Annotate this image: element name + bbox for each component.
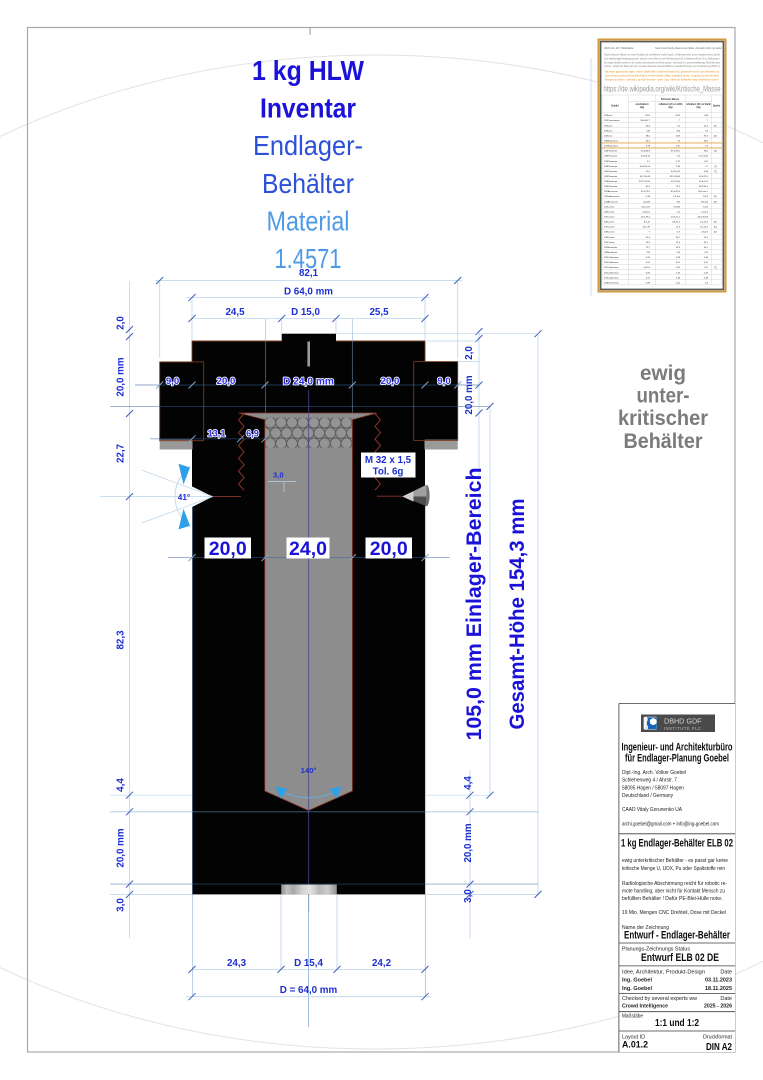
svg-text:https://de.wikipedia.org/wiki/: https://de.wikipedia.org/wiki/Kritische_…: [604, 85, 721, 94]
svg-text:2025 - 2026: 2025 - 2026: [704, 1003, 732, 1009]
svg-text:befüllten Behälter ! Dafür PE-: befüllten Behälter ! Dafür PE-Blei-Hülle…: [622, 896, 722, 902]
svg-text:6,9: 6,9: [246, 429, 259, 439]
svg-text:[9]: [9]: [714, 201, 717, 203]
svg-text:24,0: 24,0: [289, 538, 327, 560]
svg-text:Schlehenweg 4 / Ahrstr. 7: Schlehenweg 4 / Ahrstr. 7: [622, 778, 677, 784]
svg-text:25,5: 25,5: [369, 307, 389, 318]
svg-text:Tol. 6g: Tol. 6g: [373, 467, 404, 478]
svg-text:19 Mio. Mengen CNC Drehteil, D: 19 Mio. Mengen CNC Drehteil, Dose mit De…: [622, 910, 726, 916]
svg-text:Nuklid: Nuklid: [611, 105, 619, 108]
svg-text:47,6-75,6: 47,6-75,6: [641, 191, 651, 193]
svg-text:4,4: 4,4: [116, 778, 127, 792]
svg-text:0,74+4,09: 0,74+4,09: [698, 156, 708, 158]
svg-text:37-280: 37-280: [673, 206, 681, 208]
svg-text:DBHD GDF: DBHD GDF: [664, 717, 702, 726]
svg-text:2559: 2559: [645, 115, 651, 117]
svg-text:22,7: 22,7: [116, 443, 127, 463]
svg-text:[6]: [6]: [714, 227, 717, 229]
svg-text:[3]: [3]: [714, 135, 717, 137]
svg-text:3,0: 3,0: [273, 471, 284, 480]
svg-text:1:1 und 1:2: 1:1 und 1:2: [655, 1017, 699, 1029]
svg-text:Date: Date: [720, 996, 732, 1002]
svg-text:Endlager-: Endlager-: [253, 130, 363, 161]
svg-text:ohne unabhaengige Bestaetigung: ohne unabhaengige Bestaetigung beruht, a…: [604, 57, 720, 60]
svg-text:20,0 mm: 20,0 mm: [116, 357, 127, 397]
svg-text:5,46+4: 5,46+4: [643, 267, 650, 269]
svg-text:Tabelle kritischer Massen von: Tabelle kritischer Massen von reinen Nuk…: [604, 54, 720, 57]
svg-text:9,04-9,42: 9,04-9,42: [641, 156, 651, 158]
svg-text:41°: 41°: [178, 493, 190, 502]
svg-text:82,1: 82,1: [299, 268, 319, 279]
svg-text:45,8-86,8: 45,8-86,8: [641, 151, 651, 153]
svg-text:12,27-13,54: 12,27-13,54: [638, 181, 650, 183]
svg-text:82,3: 82,3: [116, 630, 127, 650]
svg-text:9,0: 9,0: [437, 376, 450, 387]
svg-text:[2]: [2]: [714, 125, 717, 127]
svg-text:pruefen - anhand der Daten aus: pruefen - anhand der Daten aus dem neues…: [604, 65, 720, 68]
svg-text:Crowd Intelligence: Crowd Intelligence: [622, 1003, 668, 1009]
svg-text:[7]: [7]: [714, 171, 717, 173]
svg-text:43,2-90,69: 43,2-90,69: [698, 217, 709, 219]
svg-text:[3]: [3]: [714, 151, 717, 153]
svg-text:mote handling, aber nicht für: mote handling, aber nicht für Kontakt Me…: [622, 889, 725, 895]
svg-text:50-208: 50-208: [643, 201, 651, 203]
svg-text:CAAD Vitaly Gorunenko UA: CAAD Vitaly Gorunenko UA: [622, 807, 682, 813]
svg-text:unter-: unter-: [637, 385, 690, 408]
svg-text:2,0: 2,0: [464, 346, 475, 360]
svg-text:Behälter: Behälter: [262, 168, 354, 199]
svg-text:20,0 mm: 20,0 mm: [463, 823, 474, 863]
svg-text:für Endlager-Planung Goebel: für Endlager-Planung Goebel: [625, 753, 729, 765]
svg-text:87,0-99,0: 87,0-99,0: [671, 151, 681, 153]
svg-text:(kg): (kg): [696, 107, 700, 109]
svg-text:Druckformat: Druckformat: [703, 1035, 732, 1041]
svg-text:Bei einigen Nukliden werden in: Bei einigen Nukliden werden in der Liter…: [604, 61, 720, 64]
svg-text:500-600 ?: 500-600 ?: [640, 120, 651, 122]
svg-text:5,05-5,41: 5,05-5,41: [699, 181, 709, 183]
svg-text:5,1-8,4: 5,1-8,4: [673, 196, 681, 198]
svg-text:7,54-5,6: 7,54-5,6: [642, 211, 651, 213]
svg-text:5,42-0,45: 5,42-0,45: [671, 171, 681, 173]
svg-text:4,4: 4,4: [463, 776, 474, 790]
svg-text:24,5-371: 24,5-371: [641, 206, 650, 208]
svg-text:Entwurf ELB 02 DE: Entwurf ELB 02 DE: [641, 952, 719, 964]
svg-text:Mengen und Arten - deshalb 1 k: Mengen und Arten - deshalb 1 kg HLW Inve…: [605, 79, 719, 82]
svg-text:7-154: 7-154: [702, 206, 708, 208]
svg-text:36,7-39,08: 36,7-39,08: [640, 176, 651, 178]
svg-text:A.01.2: A.01.2: [622, 1040, 648, 1051]
svg-text:90,9-22,9: 90,9-22,9: [699, 176, 709, 178]
svg-text:D 24,0 mm: D 24,0 mm: [283, 377, 334, 388]
svg-text:Material: Material: [267, 205, 350, 236]
svg-text:(kg): (kg): [640, 107, 644, 109]
svg-text:Idee, Architektur, Produkt-Des: Idee, Architektur, Produkt-Design: [622, 970, 705, 976]
svg-text:86-106: 86-106: [701, 201, 709, 203]
svg-text:Quelle: Quelle: [713, 105, 721, 108]
svg-text:D = 64,0 mm: D = 64,0 mm: [280, 985, 338, 996]
svg-text:diese mit einem grossen Sicher: diese mit einem grossen Sicherheits-Abst…: [605, 75, 720, 78]
svg-text:Behälter: Behälter: [624, 430, 703, 453]
svg-text:8,7-41: 8,7-41: [644, 222, 651, 224]
svg-text:(kg): (kg): [668, 107, 672, 109]
svg-text:18.11.2025: 18.11.2025: [705, 986, 732, 992]
svg-text:kritische Menge U, UOX, Pu ode: kritische Menge U, UOX, Pu oder Spaltsto…: [622, 866, 725, 872]
svg-text:82,0-87,6: 82,0-87,6: [671, 191, 681, 193]
svg-text:140°: 140°: [301, 766, 317, 775]
svg-text:[7]: [7]: [714, 166, 717, 168]
svg-text:9,0: 9,0: [166, 376, 179, 387]
svg-text:20,0 mm: 20,0 mm: [116, 828, 127, 868]
svg-text:Man kann ganz genau sagen, wel: Man kann ganz genau sagen, welche Spalts…: [605, 71, 720, 74]
svg-text:8,54-45,54: 8,54-45,54: [640, 166, 651, 168]
svg-text:82,9-39,86: 82,9-39,86: [670, 176, 681, 178]
svg-text:2,0: 2,0: [116, 316, 127, 330]
svg-text:1 kg Endlager-Behälter ELB 02: 1 kg Endlager-Behälter ELB 02: [621, 838, 733, 850]
svg-text:Kritische Masse: Kritische Masse: [661, 98, 680, 101]
svg-text:3,8-11,1: 3,8-11,1: [672, 222, 681, 224]
svg-text:20,0: 20,0: [381, 376, 400, 387]
svg-text:Radiologische Abschirmung reic: Radiologische Abschirmung reicht für rob…: [622, 881, 727, 887]
svg-text:Entwurf - Endlager-Behälter: Entwurf - Endlager-Behälter: [624, 930, 731, 942]
svg-text:Inventar: Inventar: [260, 93, 356, 124]
svg-text:24,3: 24,3: [227, 958, 247, 969]
svg-text:2,8-4,9: 2,8-4,9: [701, 232, 709, 234]
svg-text:Deutschland / Germany: Deutschland / Germany: [622, 793, 673, 799]
svg-text:Ing. Goebel: Ing. Goebel: [622, 978, 652, 984]
svg-text:M 32 x 1,5: M 32 x 1,5: [365, 455, 412, 466]
svg-text:Date: Date: [720, 970, 732, 976]
svg-text:Gesamt-Höhe 154,3 mm: Gesamt-Höhe 154,3 mm: [506, 499, 529, 730]
svg-text:5,07-4,06: 5,07-4,06: [671, 181, 681, 183]
svg-text:[6]: [6]: [714, 232, 717, 234]
svg-text:D 15,0: D 15,0: [291, 307, 320, 318]
svg-text:Checked by several experts ww: Checked by several experts ww: [622, 996, 697, 1002]
svg-text:20,0: 20,0: [217, 376, 236, 387]
svg-text:20,0 mm: 20,0 mm: [464, 375, 475, 415]
svg-text:13,1: 13,1: [208, 429, 226, 439]
svg-text:2023-11-18 / Wikitable: 2023-11-18 / Wikitable: [604, 47, 634, 50]
svg-text:DIN A2: DIN A2: [706, 1041, 732, 1053]
svg-text:2,9-3,1: 2,9-3,1: [701, 211, 709, 213]
svg-text:[9]: [9]: [714, 196, 717, 198]
svg-text:29,2-39,1: 29,2-39,1: [641, 217, 651, 219]
svg-text:Dipl.-Ing. Arch. Volker Goebel: Dipl.-Ing. Arch. Volker Goebel: [622, 770, 686, 776]
svg-text:ewig unterkritischer Behälter: ewig unterkritischer Behälter - es passt…: [622, 858, 728, 864]
svg-text:[7]: [7]: [714, 267, 717, 269]
svg-text:Stand of use Kritische_Masse d: Stand of use Kritische_Masse de.wiki Tab…: [655, 47, 722, 50]
svg-text:[6]: [6]: [714, 222, 717, 224]
svg-text:20,0: 20,0: [370, 538, 408, 560]
svg-text:35,9-70: 35,9-70: [643, 227, 651, 229]
svg-text:3,0: 3,0: [116, 898, 127, 912]
svg-text:3-4,5: 3-4,5: [703, 196, 709, 198]
svg-text:2242: 2242: [675, 115, 681, 117]
svg-text:kritischer: kritischer: [618, 407, 708, 430]
svg-text:1 kg HLW: 1 kg HLW: [252, 55, 364, 86]
svg-text:24,5: 24,5: [225, 307, 245, 318]
svg-text:INSTITUTE PLC: INSTITUTE PLC: [664, 726, 701, 731]
svg-text:D 64,0 mm: D 64,0 mm: [284, 287, 333, 298]
svg-text:D 15,4: D 15,4: [294, 958, 323, 969]
svg-text:Maßstäbe: Maßstäbe: [622, 1014, 643, 1020]
svg-text:38,2-80,1: 38,2-80,1: [699, 186, 709, 188]
svg-text:Ing. Goebel: Ing. Goebel: [622, 986, 652, 992]
svg-text:20,0: 20,0: [209, 538, 247, 560]
svg-text:105,0 mm Einlager-Bereich: 105,0 mm Einlager-Bereich: [463, 468, 486, 741]
svg-text:ewig: ewig: [640, 362, 686, 385]
svg-text:58095 Hagen / 58097 Hagen: 58095 Hagen / 58097 Hagen: [622, 785, 684, 791]
svg-text:30,6 ww 1: 30,6 ww 1: [698, 191, 709, 193]
svg-text:2,5-12,6: 2,5-12,6: [700, 222, 709, 224]
svg-text:03.11.2023: 03.11.2023: [705, 978, 732, 984]
svg-text:22+23,2: 22+23,2: [700, 227, 709, 229]
svg-text:20,9-27,1: 20,9-27,1: [671, 217, 681, 219]
svg-text:archi.goebel@gmail.com + info@: archi.goebel@gmail.com + info@ing-goebel…: [622, 822, 719, 828]
svg-text:24,2: 24,2: [372, 958, 392, 969]
